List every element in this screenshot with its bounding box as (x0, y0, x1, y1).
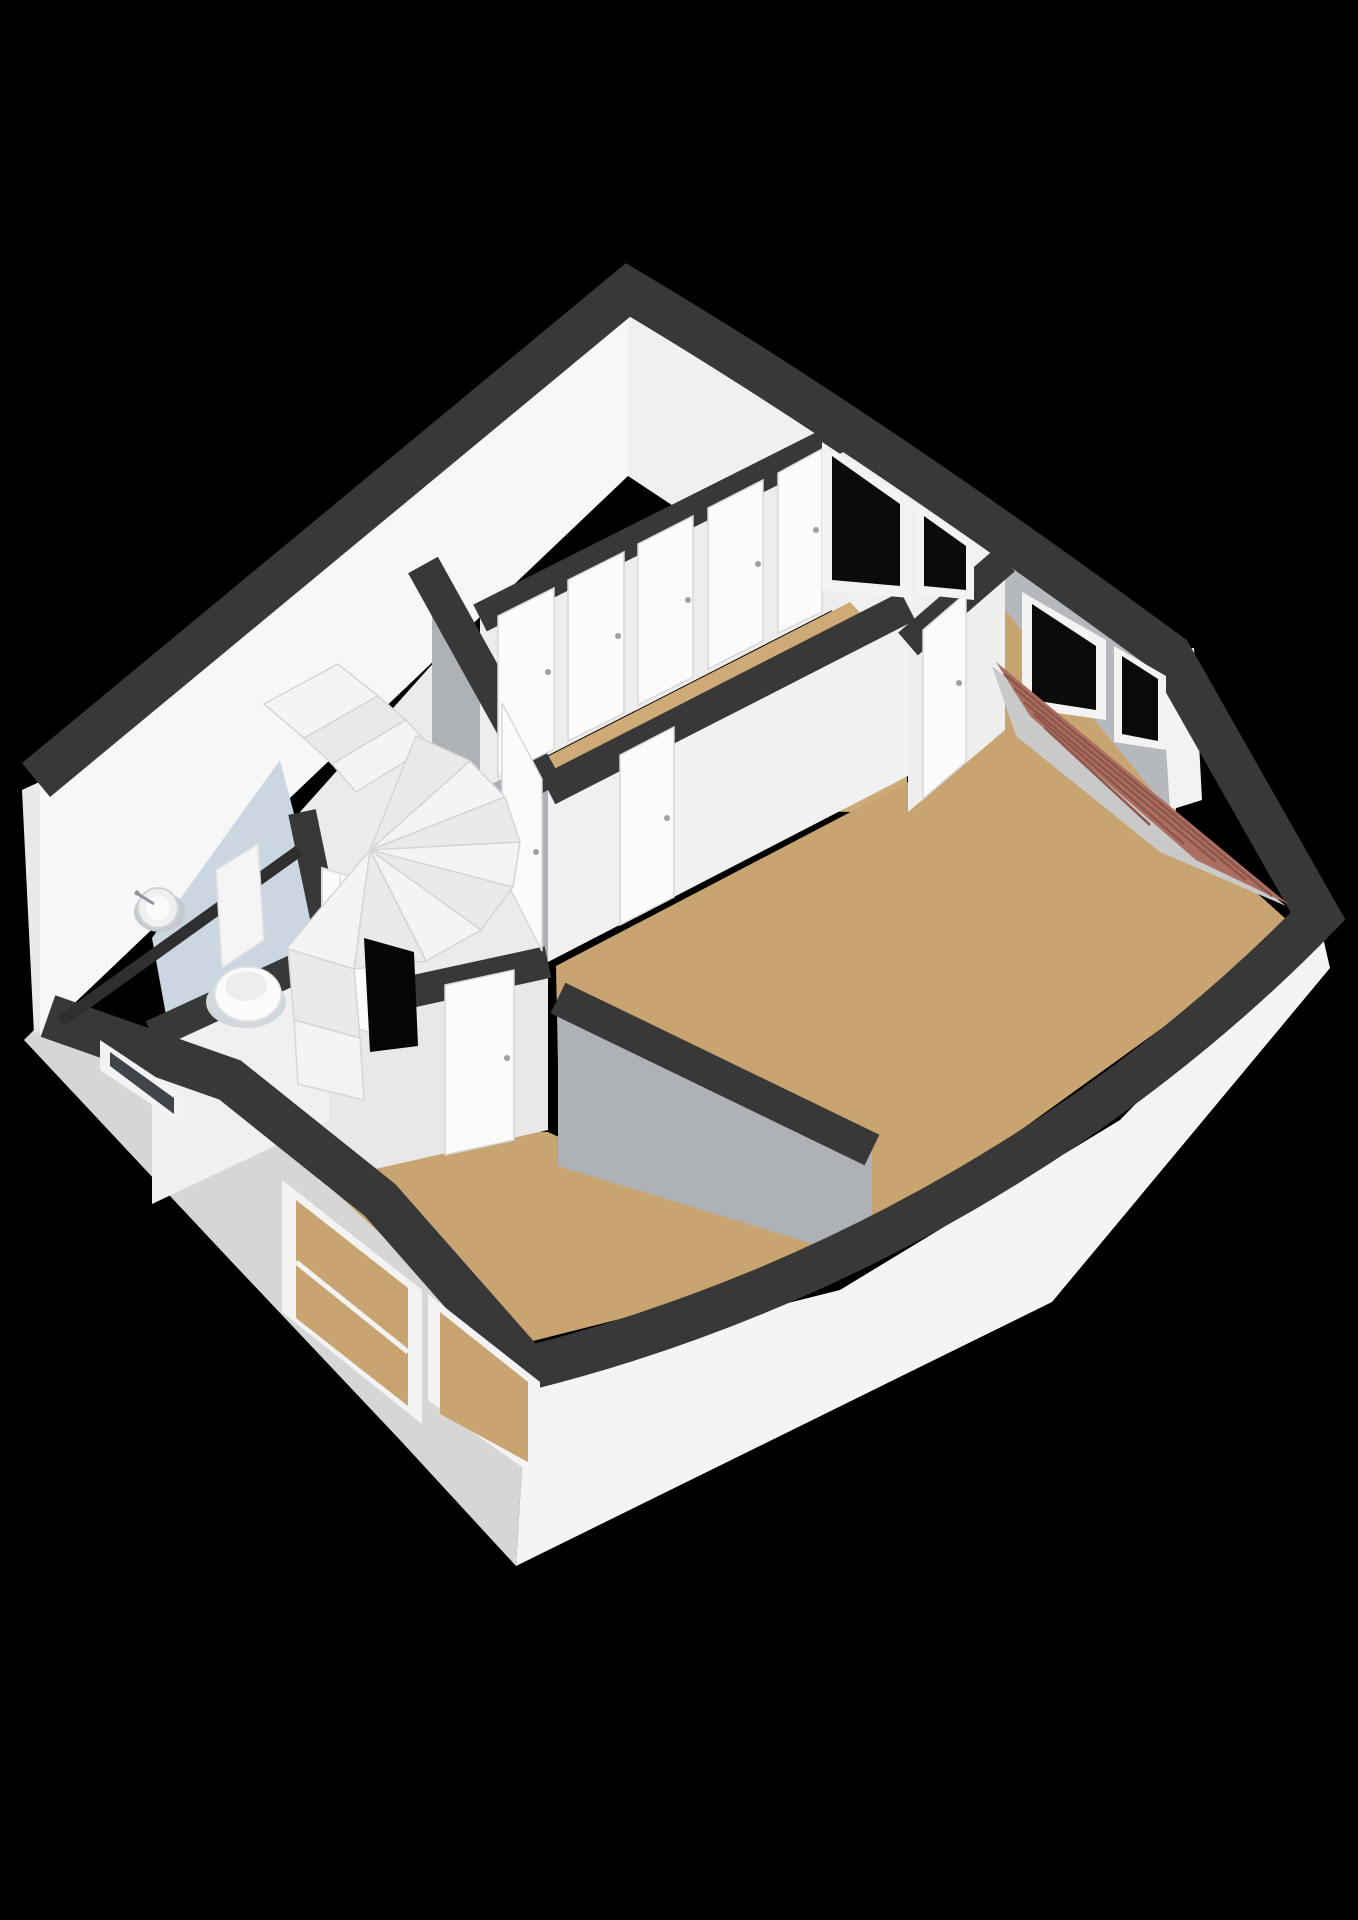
closet-door-panel-5 (778, 449, 822, 633)
closet-door-handle-2 (615, 633, 621, 639)
closet-door-handle-1 (545, 669, 551, 675)
floorplan-3d-render (0, 0, 1358, 1920)
closet-door-handle-3 (685, 597, 691, 603)
door-ne-bedroom (923, 593, 966, 799)
door-east-bedroom-handle (664, 815, 670, 821)
closet-door-panel-2 (568, 552, 624, 741)
door-stair-room-handle (533, 849, 539, 855)
door-south-bedroom-handle (504, 1055, 510, 1061)
floorplan-3d-canvas (0, 0, 1358, 1920)
toilet-seat (225, 971, 267, 1001)
door-east-bedroom (620, 727, 674, 925)
stairwell-opening (364, 938, 418, 1052)
closet-door-panel-3 (638, 516, 693, 705)
closet-door-panel-4 (708, 480, 763, 669)
door-south-bedroom (445, 970, 514, 1155)
basin-faucet-head (135, 891, 140, 896)
door-ne-bedroom-handle (956, 680, 962, 686)
closet-door-handle-5 (813, 527, 819, 533)
closet-door-handle-4 (755, 561, 761, 567)
